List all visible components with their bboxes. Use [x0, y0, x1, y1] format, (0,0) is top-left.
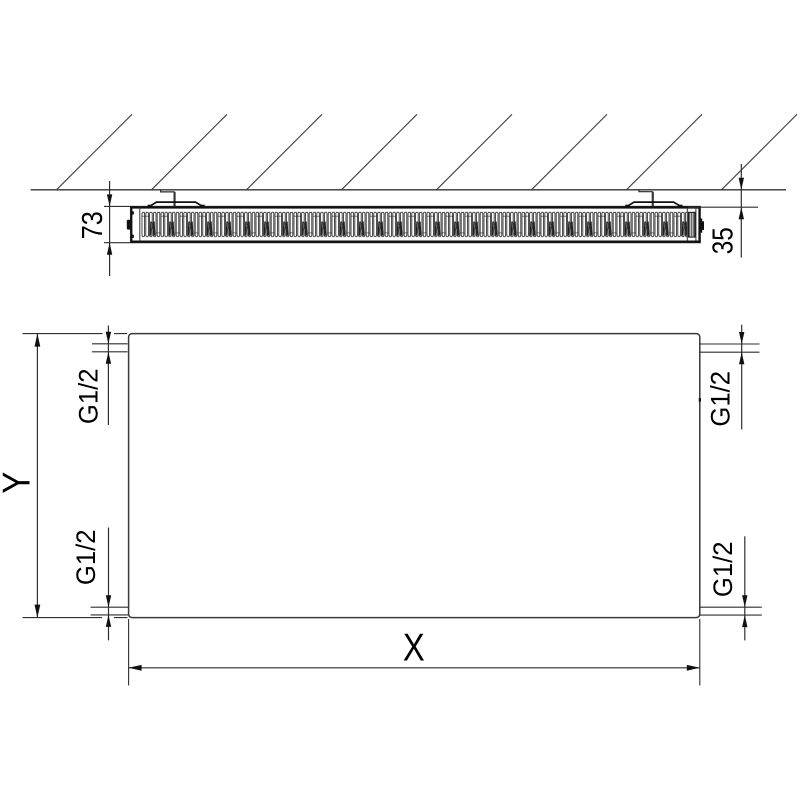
svg-text:73: 73 [75, 211, 108, 239]
svg-text:35: 35 [707, 227, 739, 254]
svg-text:G1/2: G1/2 [705, 371, 736, 427]
svg-text:G1/2: G1/2 [70, 529, 101, 585]
svg-text:G1/2: G1/2 [73, 368, 104, 424]
svg-text:X: X [403, 625, 425, 669]
svg-text:G1/2: G1/2 [707, 541, 738, 597]
svg-text:Y: Y [0, 472, 38, 494]
